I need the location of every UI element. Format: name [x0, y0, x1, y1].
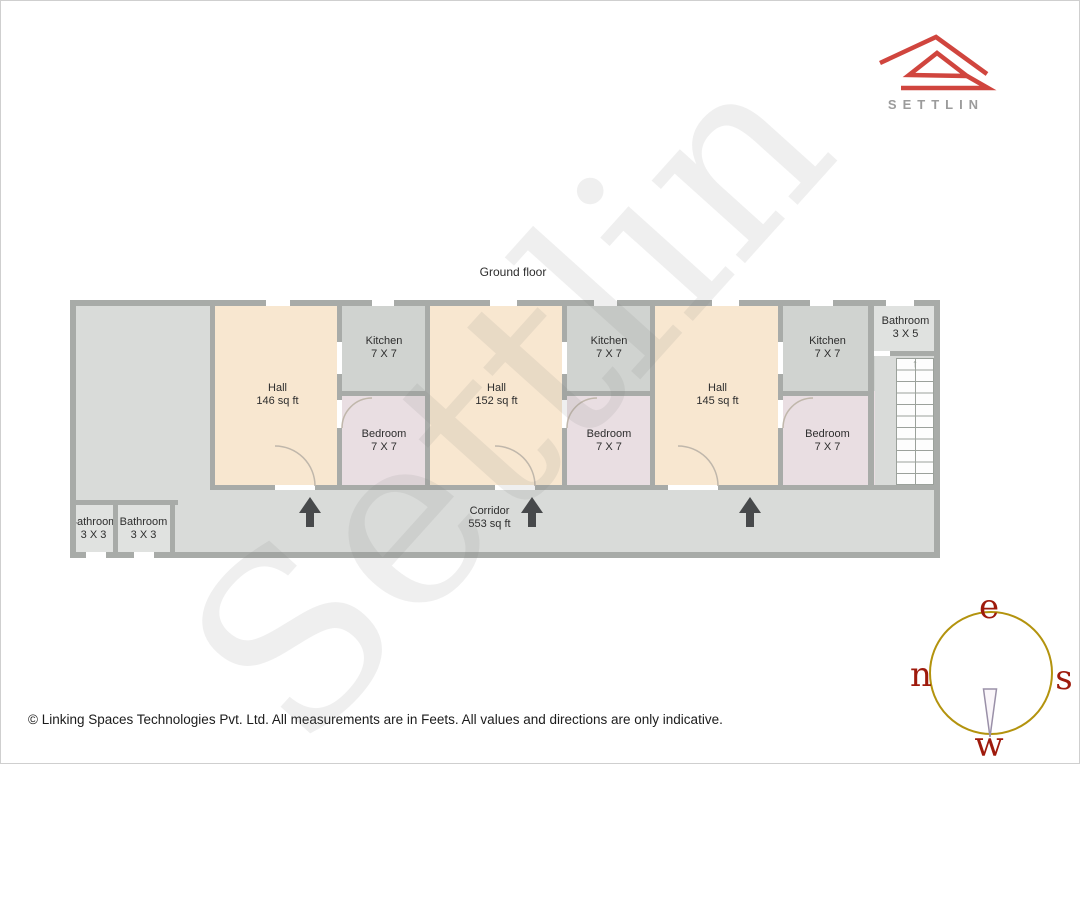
floor-title: Ground floor	[428, 265, 598, 279]
up-arrow-icon	[299, 497, 321, 527]
door-swing-arc	[275, 446, 315, 486]
door-swing-arc	[495, 446, 535, 486]
up-arrow-icon	[521, 497, 543, 527]
plan-decorations	[70, 300, 940, 558]
up-arrow-icon	[739, 497, 761, 527]
direction-arrows	[299, 497, 761, 527]
compass-west-label: w	[974, 725, 1003, 764]
door-swing-arc	[783, 398, 813, 428]
door-swing-arcs	[275, 398, 813, 486]
brand-name: SETTLIN	[866, 97, 1006, 112]
compass-east-label: e	[979, 587, 999, 627]
compass-south-label: s	[1055, 658, 1072, 698]
door-swing-arc	[678, 446, 718, 486]
compass-north-label: n	[910, 655, 932, 695]
door-swing-arc	[342, 398, 372, 428]
door-swing-arc	[567, 398, 597, 428]
settlin-house-logo-icon	[868, 26, 1002, 100]
floor-plan: Hall146 sq ft Kitchen7 X 7 Bedroom7 X 7 …	[70, 300, 940, 558]
compass-rose: e n s w	[905, 578, 1080, 764]
copyright-disclaimer: © Linking Spaces Technologies Pvt. Ltd. …	[28, 712, 723, 727]
